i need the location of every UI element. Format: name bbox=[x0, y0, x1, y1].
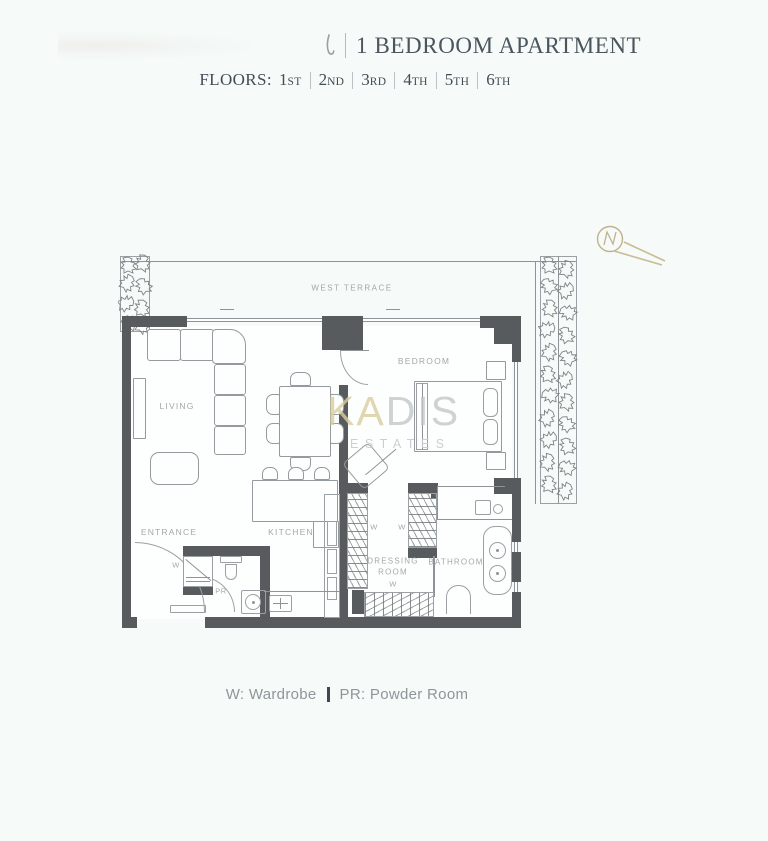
floor-plan: WEST TERRACE LIVING BEDROOM ENTRANCE KIT… bbox=[0, 0, 768, 841]
wall bbox=[122, 316, 131, 628]
bathtub bbox=[446, 585, 471, 614]
wardrobe-tag: W bbox=[398, 523, 406, 532]
sofa-cushion bbox=[147, 329, 181, 361]
terrace-boundary-line bbox=[122, 261, 577, 262]
bar-stool bbox=[314, 467, 330, 480]
sofa-cushion bbox=[214, 395, 246, 426]
toilet-bowl bbox=[493, 504, 503, 514]
window bbox=[363, 318, 480, 322]
window-tick bbox=[220, 309, 234, 310]
bush-plants-right-icon bbox=[538, 254, 580, 506]
watermark-logo: KADIS bbox=[327, 388, 460, 435]
window bbox=[514, 542, 518, 552]
bedroom-door-leaf bbox=[340, 350, 369, 351]
kitchen-appliance bbox=[327, 521, 337, 546]
wall bbox=[352, 590, 364, 614]
sofa-corner-cushion bbox=[212, 329, 246, 364]
legend-wardrobe: W: Wardrobe bbox=[226, 686, 317, 703]
wall bbox=[322, 316, 363, 350]
bar-stool bbox=[262, 467, 278, 480]
closet-shelf-line bbox=[186, 577, 210, 578]
nightstand bbox=[486, 361, 506, 380]
kitchen-appliance bbox=[327, 549, 337, 574]
wall bbox=[183, 546, 270, 556]
room-label-dressing: ROOM bbox=[378, 568, 408, 577]
nightstand bbox=[486, 452, 506, 470]
kitchen-appliance bbox=[327, 577, 337, 600]
window bbox=[514, 362, 518, 478]
bar-stool bbox=[288, 467, 304, 480]
floorplan-page: 1 BEDROOM APARTMENT FLOORS: 1st 2nd 3rd … bbox=[0, 0, 768, 841]
window bbox=[187, 318, 322, 322]
coffee-table bbox=[150, 452, 199, 485]
dining-chair bbox=[290, 372, 311, 386]
wall bbox=[512, 316, 521, 362]
terrace-boundary-line bbox=[535, 261, 536, 504]
tv-console bbox=[133, 378, 146, 439]
toilet-tank bbox=[220, 556, 242, 563]
room-label-kitchen: KITCHEN bbox=[268, 527, 314, 537]
kitchen-counter-line bbox=[264, 591, 340, 592]
watermark-subtitle: ESTATES bbox=[350, 437, 451, 451]
legend-separator bbox=[327, 687, 330, 702]
room-label-entrance: ENTRANCE bbox=[141, 527, 197, 537]
room-label-bathroom: BATHROOM bbox=[428, 558, 483, 567]
wardrobe bbox=[408, 493, 437, 548]
toilet-bowl bbox=[225, 564, 237, 580]
bathroom-vanity bbox=[483, 526, 512, 595]
wardrobe-tag: W bbox=[370, 523, 378, 532]
bathroom-partition-line bbox=[437, 486, 505, 487]
kitchen-sink-cross bbox=[280, 598, 281, 609]
sink-drain-dot bbox=[496, 549, 499, 552]
wall bbox=[512, 552, 521, 582]
wall bbox=[122, 316, 187, 327]
wall bbox=[512, 592, 521, 628]
legend-powder-room: PR: Powder Room bbox=[340, 686, 469, 703]
sink-drain-dot bbox=[496, 572, 499, 575]
room-label-bedroom: BEDROOM bbox=[398, 356, 450, 366]
window-tick bbox=[386, 309, 400, 310]
pillow bbox=[483, 388, 498, 417]
bathroom-counter-line bbox=[437, 519, 512, 520]
wall bbox=[205, 617, 521, 628]
wardrobe bbox=[347, 493, 368, 589]
room-label-west-terrace: WEST TERRACE bbox=[311, 284, 392, 293]
wall bbox=[122, 617, 137, 628]
powder-room-tag: PR bbox=[215, 587, 226, 596]
window bbox=[514, 582, 518, 592]
bathroom-partition-line bbox=[437, 486, 438, 519]
legend: W: Wardrobe PR: Powder Room bbox=[0, 686, 694, 703]
dining-chair bbox=[266, 423, 280, 444]
sofa-cushion bbox=[214, 426, 246, 455]
sofa-cushion bbox=[180, 329, 214, 361]
toilet-tank bbox=[475, 500, 491, 515]
wardrobe bbox=[364, 592, 434, 617]
dining-chair bbox=[266, 394, 280, 415]
sink-drain-dot bbox=[252, 601, 255, 604]
wardrobe-tag: W bbox=[172, 561, 180, 570]
closet-shelf-line bbox=[186, 581, 210, 582]
room-label-dressing: DRESSING bbox=[367, 557, 418, 566]
dining-table bbox=[279, 386, 331, 457]
pillow bbox=[483, 419, 498, 445]
sofa-cushion bbox=[214, 364, 246, 395]
wall bbox=[512, 478, 521, 542]
wardrobe-tag: W bbox=[389, 580, 397, 589]
room-label-living: LIVING bbox=[159, 401, 194, 411]
